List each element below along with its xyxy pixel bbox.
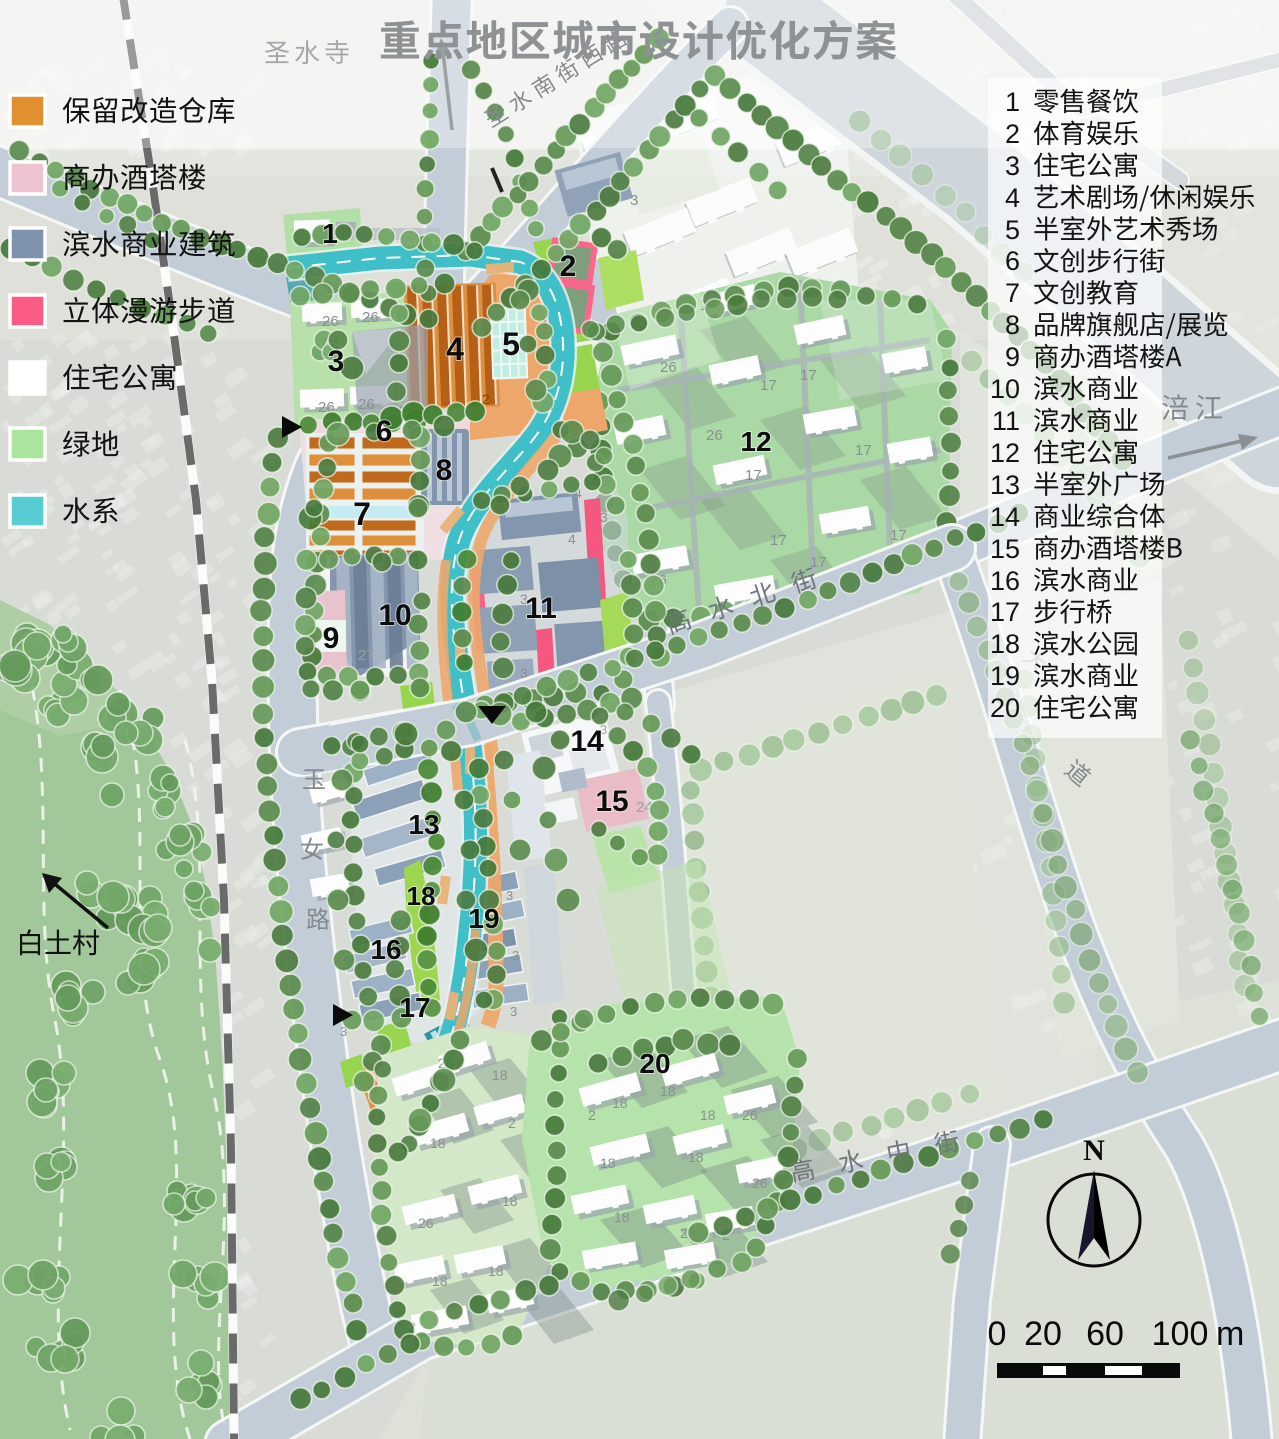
svg-text:18: 18 — [660, 1083, 676, 1099]
svg-text:18: 18 — [488, 1263, 504, 1279]
svg-text:3: 3 — [600, 509, 608, 525]
svg-text:100: 100 — [1152, 1315, 1209, 1353]
svg-text:18: 18 — [688, 1149, 704, 1165]
svg-text:4: 4 — [396, 649, 404, 665]
svg-text:2: 2 — [1005, 119, 1020, 149]
svg-text:3: 3 — [328, 345, 345, 378]
svg-text:13: 13 — [990, 470, 1020, 500]
svg-text:0: 0 — [988, 1315, 1007, 1353]
svg-text:1: 1 — [322, 218, 338, 249]
svg-text:16: 16 — [370, 934, 401, 965]
svg-text:1: 1 — [1005, 87, 1020, 117]
svg-text:15: 15 — [595, 785, 628, 818]
svg-text:10: 10 — [990, 374, 1020, 404]
svg-text:13: 13 — [408, 809, 439, 840]
svg-text:10: 10 — [378, 599, 411, 632]
svg-text:26: 26 — [358, 396, 375, 413]
svg-text:17: 17 — [399, 992, 430, 1023]
svg-text:m: m — [1216, 1315, 1244, 1353]
svg-text:9: 9 — [323, 622, 340, 655]
svg-text:11: 11 — [992, 406, 1020, 436]
svg-text:3: 3 — [630, 192, 638, 209]
svg-text:60: 60 — [1086, 1315, 1124, 1353]
svg-text:3: 3 — [510, 1004, 517, 1019]
svg-text:3: 3 — [506, 888, 513, 903]
svg-text:19: 19 — [990, 661, 1020, 691]
svg-text:27: 27 — [358, 647, 375, 664]
svg-text:7: 7 — [1005, 278, 1020, 308]
svg-text:18: 18 — [407, 881, 436, 911]
svg-text:17: 17 — [855, 442, 872, 459]
svg-text:18: 18 — [600, 1155, 616, 1171]
svg-text:18: 18 — [492, 1067, 508, 1083]
svg-text:12: 12 — [740, 426, 771, 457]
svg-text:26: 26 — [752, 1175, 768, 1191]
svg-text:4: 4 — [1005, 183, 1020, 213]
svg-text:14: 14 — [570, 725, 604, 758]
svg-text:17: 17 — [760, 377, 777, 394]
svg-text:18: 18 — [614, 1209, 630, 1225]
svg-text:4: 4 — [568, 531, 576, 547]
svg-text:18: 18 — [612, 1095, 628, 1111]
svg-text:20: 20 — [639, 1048, 670, 1079]
svg-text:26: 26 — [322, 313, 339, 330]
svg-text:17: 17 — [800, 367, 817, 384]
svg-text:16: 16 — [990, 566, 1020, 596]
svg-text:18: 18 — [502, 1193, 518, 1209]
svg-text:4: 4 — [446, 331, 464, 367]
svg-text:5: 5 — [502, 326, 520, 362]
svg-text:2: 2 — [588, 1107, 596, 1123]
svg-text:3: 3 — [512, 948, 519, 963]
svg-text:12: 12 — [990, 438, 1020, 468]
svg-text:18: 18 — [700, 1107, 716, 1123]
svg-text:26: 26 — [742, 1107, 758, 1123]
svg-text:6: 6 — [1005, 246, 1020, 276]
svg-text:14: 14 — [990, 502, 1020, 532]
svg-text:8: 8 — [1005, 310, 1020, 340]
svg-text:11: 11 — [525, 592, 557, 625]
svg-text:17: 17 — [990, 597, 1020, 627]
svg-text:26: 26 — [706, 427, 723, 444]
svg-text:17: 17 — [770, 532, 787, 549]
svg-text:26: 26 — [418, 1215, 434, 1231]
svg-text:3: 3 — [1005, 151, 1020, 181]
svg-text:6: 6 — [376, 415, 393, 448]
svg-text:18: 18 — [432, 1273, 448, 1289]
svg-text:20: 20 — [990, 693, 1020, 723]
svg-text:7: 7 — [353, 496, 371, 532]
svg-text:17: 17 — [810, 554, 827, 571]
svg-text:19: 19 — [468, 903, 499, 934]
svg-text:17: 17 — [745, 467, 762, 484]
svg-text:2: 2 — [560, 250, 577, 283]
svg-text:26: 26 — [362, 309, 379, 326]
svg-text:15: 15 — [990, 534, 1020, 564]
svg-text:5: 5 — [1005, 215, 1020, 245]
svg-text:18: 18 — [990, 629, 1020, 659]
svg-text:26: 26 — [660, 359, 677, 376]
svg-text:18: 18 — [430, 1135, 446, 1151]
svg-text:N: N — [1083, 1134, 1105, 1167]
svg-text:8: 8 — [436, 454, 453, 487]
svg-text:9: 9 — [1005, 342, 1020, 372]
svg-text:20: 20 — [1024, 1315, 1062, 1353]
svg-text:2: 2 — [508, 1115, 516, 1131]
